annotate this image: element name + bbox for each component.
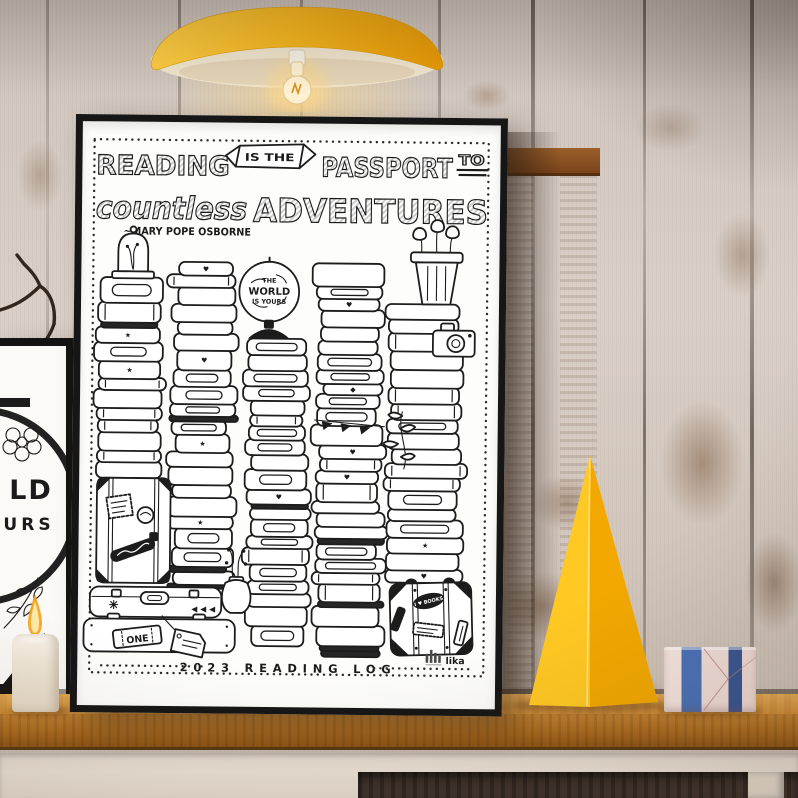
gift-fold-lines [664, 647, 756, 712]
book-spine [388, 432, 459, 450]
book-spine-glyph: ♥ [276, 493, 282, 501]
book-spine [391, 369, 464, 389]
book-spine-glyph: ♥ [350, 449, 356, 457]
pendant-lamp [146, 0, 448, 112]
book-title-label [181, 424, 216, 431]
globe-base [248, 329, 290, 339]
globe-text-world: WORLD [248, 287, 290, 298]
cabinet-leg [748, 772, 784, 798]
globe-icon: THE WORLD IS YOURS [239, 256, 300, 338]
book-title-label [259, 584, 296, 591]
book-spine-glyph: ♥ [344, 474, 350, 482]
print-text-fragment-2: URS [3, 515, 54, 535]
book-spine [168, 496, 236, 517]
title-word-passport: PASSPORT [321, 152, 453, 184]
book-stack-D: ♥♥◆♥ [308, 263, 390, 657]
book-title-label [328, 358, 372, 366]
book-spine-glyph: ♥ [201, 357, 207, 365]
title-word-to: TO [459, 153, 485, 169]
book-title-label [186, 374, 218, 382]
book-title-label [403, 495, 441, 504]
book-spine-glyph: ♥ [346, 301, 352, 309]
book-stack-A: ★★ [93, 277, 167, 478]
gift-box [664, 647, 756, 712]
right-suitcase-icon: I ♥ BOOKS [388, 577, 473, 656]
book-title-label [258, 444, 292, 451]
book-spine [321, 310, 384, 328]
flower-pot-icon [410, 220, 463, 305]
book-title-label [259, 389, 295, 396]
book-spine-glyph: ♥ [421, 573, 427, 581]
book-spine [178, 286, 235, 305]
book-title-label [331, 289, 368, 295]
book-spine [93, 389, 161, 409]
book-title-label [260, 475, 292, 485]
print-flower-icon [3, 428, 41, 461]
book-spine [251, 454, 308, 471]
cabinet-opening [358, 772, 798, 798]
title-banner-text: IS THE [245, 152, 295, 165]
book-spine-glyph: ◆ [350, 386, 356, 394]
book-title-label [257, 429, 296, 436]
globe-text-the: THE [262, 277, 276, 285]
round-sticker-icon [137, 507, 153, 523]
book-spine [248, 354, 307, 371]
suitcase-handle [141, 592, 169, 604]
trunk-suitcase-icon [96, 478, 171, 584]
book-spine-glyph: ★ [126, 366, 132, 374]
book-title-label [254, 374, 297, 382]
title-word-countless: countless [96, 190, 248, 228]
book-title-label [186, 391, 222, 400]
book-title-label [325, 562, 375, 569]
yellow-cone-decor [523, 450, 663, 710]
book-title-label [261, 539, 297, 545]
book-spine [386, 552, 459, 571]
room-scene: LD URS [0, 0, 798, 798]
book-spine [98, 431, 161, 451]
poster-title: READING IS THE PASSPORT TO countless ADV… [96, 142, 489, 241]
book-spine [311, 606, 378, 627]
title-to-underline [457, 170, 489, 175]
shelf-front-edge [0, 714, 798, 750]
book-spine [174, 333, 239, 351]
book-spine [316, 625, 384, 646]
book-spine [171, 304, 236, 323]
candle [12, 634, 59, 712]
book-spine-glyph: ★ [197, 519, 203, 527]
print-globe-circle [0, 410, 66, 602]
book-spine [318, 583, 380, 603]
book-spine [168, 466, 232, 486]
flower-doodle-icon [110, 601, 118, 609]
book-stack-C: ♥ [240, 338, 314, 646]
poster-art: READING IS THE PASSPORT TO countless ADV… [77, 121, 501, 709]
book-title-label [264, 524, 295, 532]
globe-text-isyours: IS YOURS [252, 298, 287, 306]
stamp-sticker-icon [106, 494, 133, 518]
book-spine [313, 263, 385, 287]
book-title-label [326, 548, 367, 556]
book-spine-glyph: ♥ [203, 265, 209, 273]
book-stack-B: ★★♥♥ [164, 262, 240, 589]
book-spine-glyph: ★ [199, 440, 205, 448]
book-spine-glyph: ★ [125, 331, 131, 339]
dashed-sticker-icon [413, 622, 444, 637]
plank-gap [750, 0, 754, 700]
book-title-label [326, 413, 367, 422]
book-title-label [260, 568, 297, 576]
book-title-label [186, 407, 220, 413]
book-spine [98, 301, 161, 323]
book-spine [386, 304, 460, 320]
book-spine-glyph: ★ [422, 542, 428, 550]
book-title-label [256, 343, 297, 351]
book-title-label [329, 398, 366, 405]
book-title-label [184, 553, 221, 562]
bottom-suitcase-icon: ONE [83, 613, 235, 658]
title-word-reading: READING [96, 150, 230, 182]
book-title-label [261, 631, 294, 641]
book-spine [245, 606, 307, 627]
logo-text: lika [445, 656, 464, 667]
bulb-neck [291, 62, 303, 76]
book-title-label [111, 347, 147, 356]
book-title-label [188, 533, 219, 543]
reading-log-poster: READING IS THE PASSPORT TO countless ADV… [70, 114, 508, 716]
book-title-label [400, 525, 448, 533]
book-title-label [112, 284, 151, 296]
book-title-label [331, 373, 369, 380]
candle-flame-icon [24, 592, 46, 638]
print-text-fragment-1: LD [9, 475, 53, 506]
book-spine [316, 482, 377, 503]
